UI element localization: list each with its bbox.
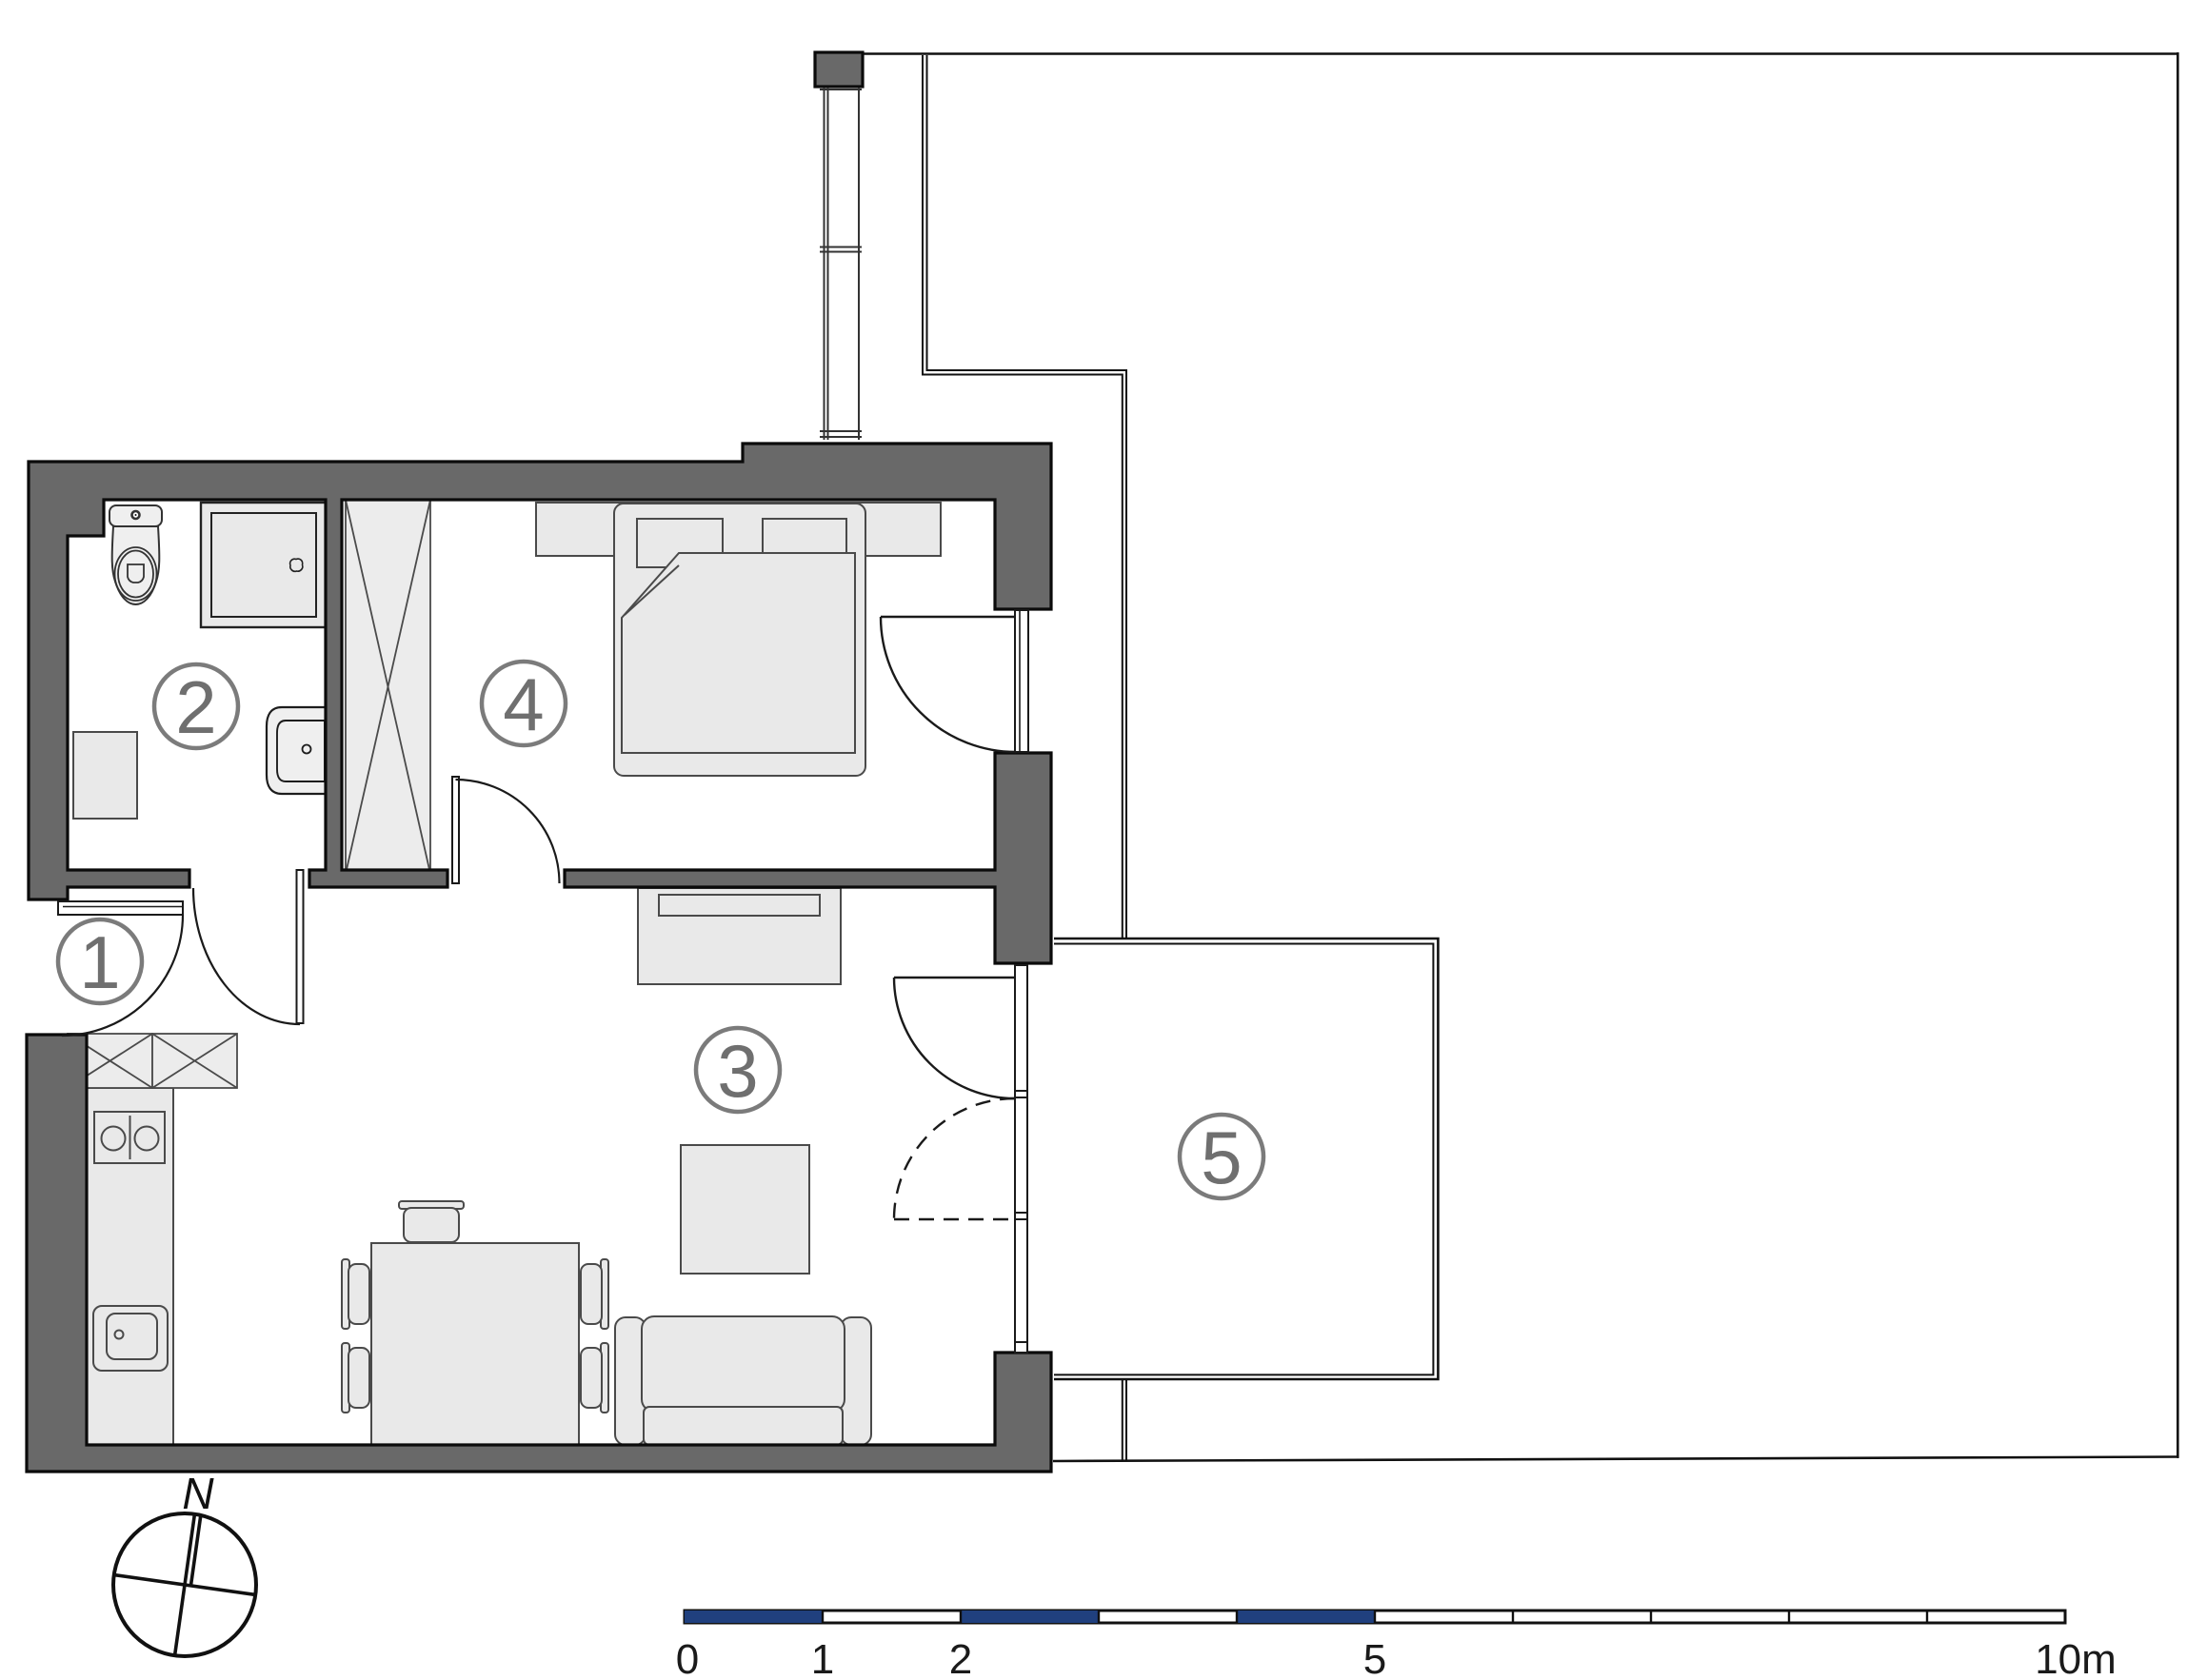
svg-text:1: 1 bbox=[79, 920, 120, 1004]
svg-text:N: N bbox=[182, 1469, 214, 1518]
svg-text:5: 5 bbox=[1201, 1116, 1242, 1199]
svg-text:1: 1 bbox=[811, 1636, 834, 1680]
svg-text:4: 4 bbox=[503, 662, 544, 746]
svg-text:3: 3 bbox=[717, 1029, 758, 1113]
svg-text:2: 2 bbox=[949, 1636, 972, 1680]
svg-text:5: 5 bbox=[1363, 1636, 1386, 1680]
svg-text:2: 2 bbox=[175, 665, 216, 749]
svg-text:0: 0 bbox=[676, 1636, 699, 1680]
svg-text:10m: 10m bbox=[2035, 1636, 2117, 1680]
